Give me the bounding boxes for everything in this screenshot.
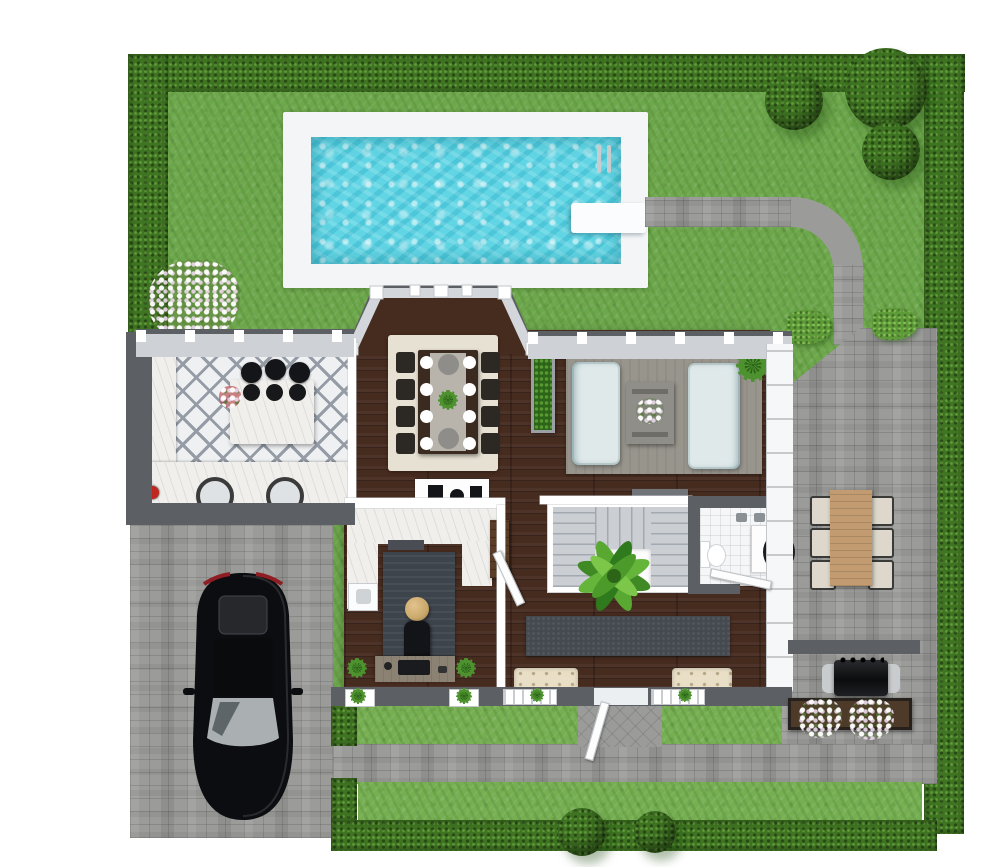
dining-chair bbox=[396, 406, 415, 427]
garden-path-horizontal bbox=[645, 197, 793, 227]
dining-chair bbox=[481, 406, 500, 427]
towel bbox=[754, 513, 765, 522]
dining-chair bbox=[396, 379, 415, 400]
car-mirror-right bbox=[291, 688, 303, 695]
hedge-block-left-lower bbox=[331, 778, 357, 822]
topiary-bush-2 bbox=[845, 48, 927, 130]
desk-accessory bbox=[438, 666, 447, 673]
topiary-bush-3 bbox=[862, 122, 920, 180]
planter-box-plant bbox=[678, 688, 692, 702]
car-rear-window bbox=[219, 596, 267, 634]
place-setting bbox=[463, 383, 476, 396]
office-plant-left bbox=[347, 658, 367, 678]
towel bbox=[736, 513, 747, 522]
coffee-table-groove bbox=[632, 432, 668, 437]
kitchen-sink-counter bbox=[151, 462, 349, 508]
wall-kitchen-dining bbox=[348, 338, 356, 508]
grill-side-shelf bbox=[887, 664, 900, 693]
car-mirror-left bbox=[183, 688, 195, 695]
front-walkway bbox=[333, 744, 937, 784]
place-setting bbox=[420, 437, 433, 450]
wall-kitchen-west bbox=[126, 332, 152, 525]
front-round-bush-1 bbox=[558, 808, 606, 856]
ladder-rail bbox=[607, 145, 611, 173]
washer-door bbox=[356, 589, 371, 604]
diving-board bbox=[571, 203, 646, 233]
charger-plate bbox=[438, 354, 459, 375]
dining-chair bbox=[481, 352, 500, 373]
car-roof bbox=[213, 638, 273, 696]
place-setting bbox=[420, 410, 433, 423]
floor-plan-render bbox=[0, 0, 1000, 867]
kitchen-side-counter bbox=[151, 352, 176, 464]
dining-chair bbox=[396, 352, 415, 373]
island-placemat-3 bbox=[289, 384, 306, 401]
sofa-left bbox=[572, 362, 620, 465]
pool-ladder bbox=[596, 145, 612, 173]
planter-box-plant bbox=[530, 688, 544, 702]
place-setting bbox=[463, 437, 476, 450]
living-window-posts bbox=[528, 332, 792, 344]
hall-runner-rug bbox=[526, 616, 730, 656]
palm-plant bbox=[568, 530, 660, 622]
kitchen-window-posts bbox=[136, 330, 354, 342]
place-setting bbox=[420, 383, 433, 396]
office-counter-top bbox=[347, 508, 497, 544]
round-gold-table bbox=[405, 597, 429, 621]
wall-office-east bbox=[497, 505, 505, 690]
coffee-table-groove bbox=[632, 389, 668, 394]
dining-chair bbox=[396, 433, 415, 454]
living-window-band bbox=[528, 331, 792, 359]
hedge-block-left-upper bbox=[331, 700, 357, 746]
sofa-right bbox=[688, 363, 740, 469]
topiary-bush-1 bbox=[765, 72, 823, 130]
bar-stool-1 bbox=[241, 362, 262, 383]
bar-stool-2 bbox=[265, 359, 286, 380]
front-grass-strip-upper bbox=[358, 702, 782, 746]
planter-box-plant bbox=[350, 688, 366, 704]
patio-low-wall bbox=[788, 640, 920, 654]
toilet-bowl bbox=[708, 545, 725, 566]
grill-knobs bbox=[838, 657, 884, 663]
laptop bbox=[398, 660, 430, 675]
front-round-bush-2 bbox=[634, 811, 676, 853]
garden-path-corner bbox=[791, 197, 863, 269]
desk-accessory bbox=[384, 662, 392, 670]
dining-chair bbox=[481, 433, 500, 454]
wall-bathroom-south bbox=[688, 584, 740, 594]
bar-stool-3 bbox=[289, 362, 310, 383]
dining-centerpiece-plant bbox=[438, 390, 458, 410]
wall-office-top bbox=[345, 498, 505, 508]
wall-front bbox=[331, 687, 792, 706]
office-counter-right bbox=[462, 541, 492, 586]
wall-bathroom-west bbox=[688, 505, 700, 590]
office-shelf-dark bbox=[388, 540, 424, 550]
wall-kitchen-south bbox=[126, 503, 355, 525]
dining-chair bbox=[481, 379, 500, 400]
charger-plate bbox=[438, 428, 459, 449]
ladder-rail bbox=[597, 145, 601, 173]
place-setting bbox=[463, 356, 476, 369]
black-car bbox=[182, 570, 304, 824]
island-placemat-2 bbox=[266, 384, 283, 401]
kitchen-window-band bbox=[136, 329, 354, 357]
hedge-top bbox=[128, 54, 965, 92]
office-plant-right bbox=[456, 658, 476, 678]
bbq-grill-body bbox=[834, 660, 888, 696]
office-chair bbox=[404, 621, 430, 659]
place-setting bbox=[420, 356, 433, 369]
swimming-pool bbox=[311, 137, 621, 264]
place-setting bbox=[463, 410, 476, 423]
planter-box-plant bbox=[456, 688, 472, 704]
outdoor-dining-table bbox=[830, 490, 872, 586]
island-placemat-1 bbox=[243, 384, 260, 401]
wall-hall-living bbox=[540, 496, 692, 504]
